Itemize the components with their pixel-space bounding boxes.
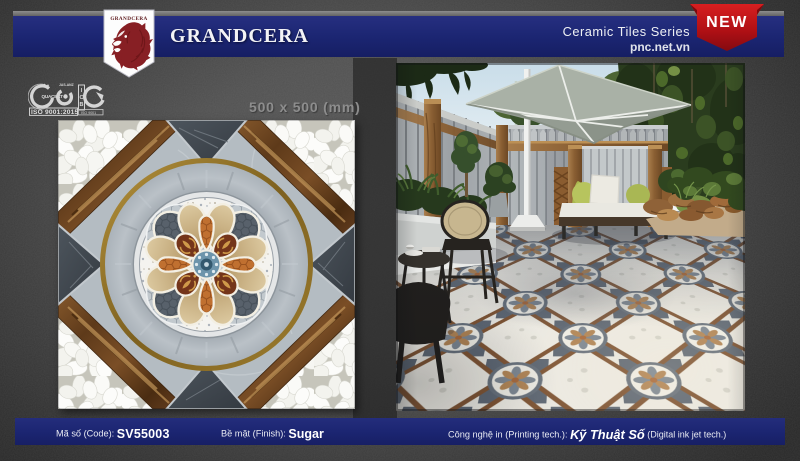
- svg-text:NEW: NEW: [706, 14, 748, 31]
- svg-text:GRANDCERA: GRANDCERA: [110, 16, 147, 22]
- svg-text:I: I: [81, 88, 83, 94]
- svg-text:ISO 9001: ISO 9001: [81, 111, 96, 115]
- svg-text:JAS-ANZ: JAS-ANZ: [59, 83, 74, 87]
- svg-text:ISO 9001:2015: ISO 9001:2015: [31, 109, 78, 116]
- svg-text:B: B: [80, 102, 84, 108]
